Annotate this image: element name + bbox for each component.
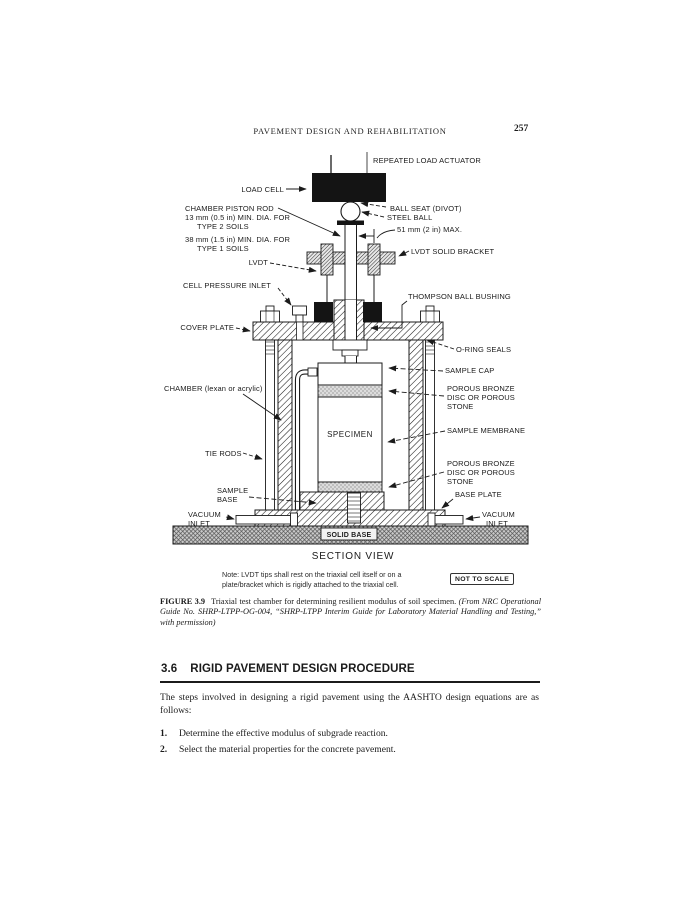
label-vacuum-right-1: VACUUM <box>482 510 515 519</box>
tie-rod-right <box>426 318 435 512</box>
list-item-number: 1. <box>160 727 179 740</box>
label-tie-rods: TIE RODS <box>205 449 242 458</box>
section-heading: 3.6 RIGID PAVEMENT DESIGN PROCEDURE <box>161 663 415 675</box>
base-stud <box>348 493 361 523</box>
steel-ball-shape <box>341 202 360 221</box>
section-steps: 1. Determine the effective modulus of su… <box>160 727 539 759</box>
label-cover-plate: COVER PLATE <box>180 323 234 332</box>
label-lvdt-bracket: LVDT SOLID BRACKET <box>411 247 495 256</box>
list-item-number: 2. <box>160 743 179 756</box>
label-lvdt: LVDT <box>249 258 268 267</box>
specimen-body <box>318 397 382 482</box>
figure-caption: FIGURE 3.9Triaxial test chamber for dete… <box>160 597 541 628</box>
not-to-scale-badge: NOT TO SCALE <box>450 573 514 585</box>
list-item: 1. Determine the effective modulus of su… <box>160 727 539 740</box>
vacuum-tube-right <box>432 516 463 525</box>
figure-note-line2: plate/bracket which is rigidly attached … <box>222 580 452 590</box>
label-thompson-bushing: THOMPSON BALL BUSHING <box>408 292 511 301</box>
load-cell-block <box>312 173 386 202</box>
tie-rod-nut-right <box>421 311 440 322</box>
label-porous-top-2: DISC OR POROUS <box>447 393 515 402</box>
section-number: 3.6 <box>161 663 177 675</box>
label-cell-pressure-inlet: CELL PRESSURE INLET <box>183 281 271 290</box>
section-title: RIGID PAVEMENT DESIGN PROCEDURE <box>190 663 414 675</box>
list-item: 2. Select the material properties for th… <box>160 743 539 756</box>
piston-rod <box>345 225 357 300</box>
label-porous-top-1: POROUS BRONZE <box>447 384 515 393</box>
section-intro: The steps involved in designing a rigid … <box>160 692 539 718</box>
figure-caption-number: FIGURE 3.9 <box>160 597 205 606</box>
label-steel-ball: STEEL BALL <box>387 213 432 222</box>
label-piston-rod-3: TYPE 2 SOILS <box>197 222 249 231</box>
label-piston-rod-4: 38 mm (1.5 in) MIN. DIA. FOR <box>185 235 290 244</box>
list-item-text: Select the material properties for the c… <box>179 743 396 756</box>
label-porous-bot-3: STONE <box>447 477 473 486</box>
label-porous-bot-2: DISC OR POROUS <box>447 468 515 477</box>
label-ball-seat: BALL SEAT (DIVOT) <box>390 204 462 213</box>
label-porous-bot-1: POROUS BRONZE <box>447 459 515 468</box>
bushing-block-right <box>363 302 382 322</box>
label-sample-cap: SAMPLE CAP <box>445 366 494 375</box>
ball-platform <box>337 221 364 226</box>
running-head: PAVEMENT DESIGN AND REHABILITATION <box>160 126 540 136</box>
base-assembly: SAMPLE BASE BASE PLATE VACUUM INLET VACU… <box>173 486 528 562</box>
label-load-cell: LOAD CELL <box>241 185 284 194</box>
label-o-ring-seals: O-RING SEALS <box>456 345 511 354</box>
figure-note-line1: Note: LVDT tips shall rest on the triaxi… <box>222 570 452 580</box>
label-repeated-load-actuator: REPEATED LOAD ACTUATOR <box>373 156 481 165</box>
vacuum-tube-left <box>236 516 296 525</box>
label-specimen: SPECIMEN <box>327 430 373 439</box>
label-sample-base-2: BASE <box>217 495 238 504</box>
figure-caption-text: Triaxial test chamber for determining re… <box>211 597 459 606</box>
cell-pressure-fitting <box>293 306 307 315</box>
sample-cap <box>318 363 382 385</box>
label-section-view: SECTION VIEW <box>312 551 394 562</box>
actuator-assembly: REPEATED LOAD ACTUATOR LOAD CELL BALL SE… <box>185 152 481 253</box>
tie-rod-nut-left <box>261 311 280 322</box>
porous-disc-bottom <box>318 482 382 493</box>
label-ball-max: 51 mm (2 in) MAX. <box>397 225 462 234</box>
cap-fitting <box>308 368 317 376</box>
label-base-plate: BASE PLATE <box>455 490 502 499</box>
label-porous-top-3: STONE <box>447 402 473 411</box>
label-chamber: CHAMBER (lexan or acrylic) <box>164 384 263 393</box>
label-sample-membrane: SAMPLE MEMBRANE <box>447 426 525 435</box>
chamber-wall-left <box>278 340 292 510</box>
list-item-text: Determine the effective modulus of subgr… <box>179 727 388 740</box>
chamber-wall-right <box>409 340 423 510</box>
label-vacuum-left-1: VACUUM <box>188 510 221 519</box>
figure-note: Note: LVDT tips shall rest on the triaxi… <box>222 570 452 589</box>
label-piston-rod-5: TYPE 1 SOILS <box>197 244 249 253</box>
section-rule <box>160 681 540 683</box>
document-page: PAVEMENT DESIGN AND REHABILITATION 257 <box>0 0 695 900</box>
label-piston-rod-2: 13 mm (0.5 in) MIN. DIA. FOR <box>185 213 290 222</box>
sample-base <box>300 492 384 510</box>
page-number: 257 <box>514 124 528 134</box>
porous-disc-top <box>318 385 382 397</box>
label-sample-base-1: SAMPLE <box>217 486 248 495</box>
label-solid-base: SOLID BASE <box>327 532 372 539</box>
lvdt-holder-right <box>368 244 380 275</box>
label-piston-rod-1: CHAMBER PISTON ROD <box>185 204 274 213</box>
lvdt-holder-left <box>321 244 333 275</box>
chamber-walls: CHAMBER (lexan or acrylic) TIE RODS <box>164 340 423 510</box>
triaxial-chamber-diagram: REPEATED LOAD ACTUATOR LOAD CELL BALL SE… <box>160 148 540 562</box>
bushing-block-left <box>314 302 333 322</box>
